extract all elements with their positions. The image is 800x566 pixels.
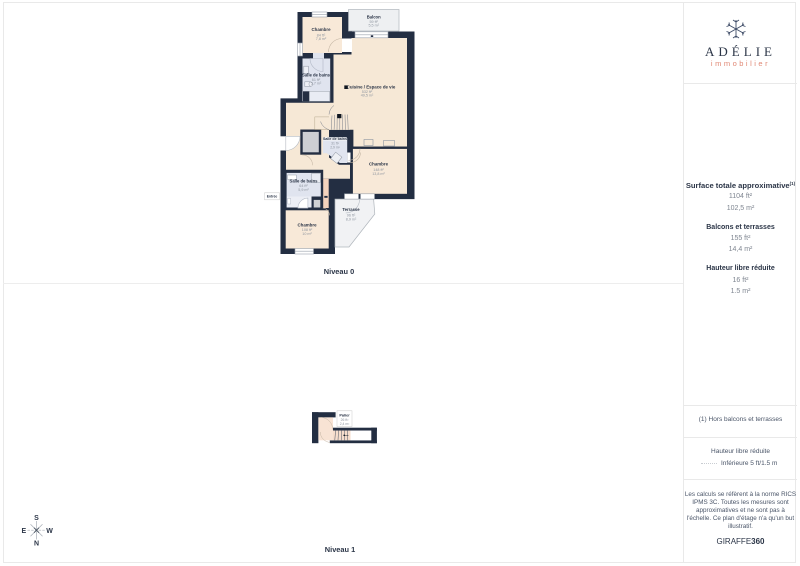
svg-text:5,9 m²: 5,9 m² [298, 188, 309, 192]
svg-text:Niveau 0: Niveau 0 [324, 267, 354, 276]
svg-text:Balcon: Balcon [367, 14, 381, 19]
svg-text:W: W [46, 528, 53, 535]
svg-text:E: E [21, 528, 26, 535]
svg-text:Chambre: Chambre [369, 161, 389, 166]
svg-text:13,8 m²: 13,8 m² [372, 172, 385, 176]
svg-text:Salle de bains: Salle de bains [302, 73, 331, 78]
svg-text:Terrasse: Terrasse [342, 207, 360, 212]
svg-text:Chambre: Chambre [297, 222, 317, 227]
svg-text:Entrée: Entrée [267, 194, 278, 198]
svg-text:10 m²: 10 m² [302, 232, 312, 236]
svg-text:5,5 m²: 5,5 m² [368, 23, 379, 27]
svg-text:2,9 m²: 2,9 m² [330, 145, 340, 149]
svg-text:Cuisine / Espace de vie: Cuisine / Espace de vie [347, 85, 396, 90]
svg-text:S: S [34, 515, 39, 522]
svg-text:49,5 m²: 49,5 m² [361, 94, 374, 98]
svg-text:Chambre: Chambre [311, 27, 331, 32]
svg-text:Niveau 1: Niveau 1 [325, 545, 355, 554]
svg-text:5,7 m²: 5,7 m² [311, 82, 322, 86]
svg-text:Salle de bains: Salle de bains [290, 178, 319, 183]
svg-text:8,9 m²: 8,9 m² [346, 218, 357, 222]
svg-text:Palier: Palier [339, 413, 350, 417]
svg-text:2,4 m²: 2,4 m² [340, 422, 350, 426]
svg-text:7,8 m²: 7,8 m² [316, 37, 327, 41]
svg-text:N: N [34, 540, 39, 547]
svg-text:Salle de bains: Salle de bains [323, 137, 347, 141]
